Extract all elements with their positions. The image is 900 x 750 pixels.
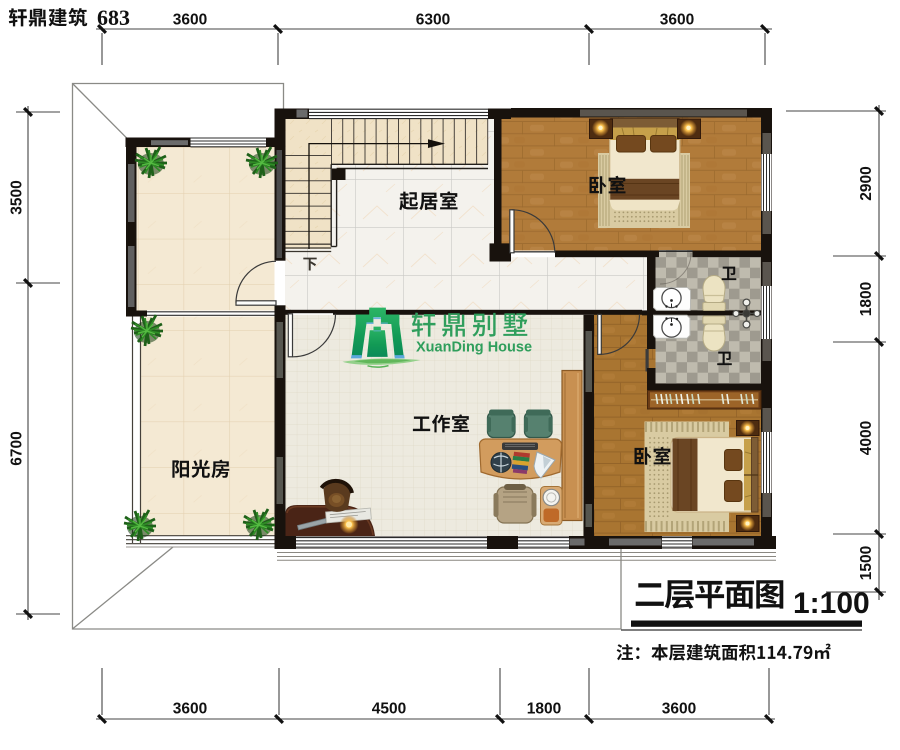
- svg-text:4000: 4000: [858, 421, 875, 455]
- svg-text:6300: 6300: [416, 12, 450, 29]
- svg-text:6700: 6700: [9, 431, 26, 465]
- svg-text:3600: 3600: [173, 12, 207, 29]
- svg-text:683: 683: [97, 5, 130, 30]
- svg-text:1500: 1500: [858, 546, 875, 580]
- svg-text:3500: 3500: [9, 180, 26, 214]
- svg-text:3600: 3600: [660, 12, 694, 29]
- svg-text:4500: 4500: [372, 701, 406, 718]
- svg-text:2900: 2900: [858, 166, 875, 200]
- svg-text:1800: 1800: [858, 282, 875, 316]
- svg-text:3600: 3600: [662, 701, 696, 718]
- svg-text:1:100: 1:100: [793, 587, 870, 620]
- svg-text:3600: 3600: [173, 701, 207, 718]
- svg-text:1800: 1800: [527, 701, 561, 718]
- svg-text:XuanDing House: XuanDing House: [416, 340, 532, 356]
